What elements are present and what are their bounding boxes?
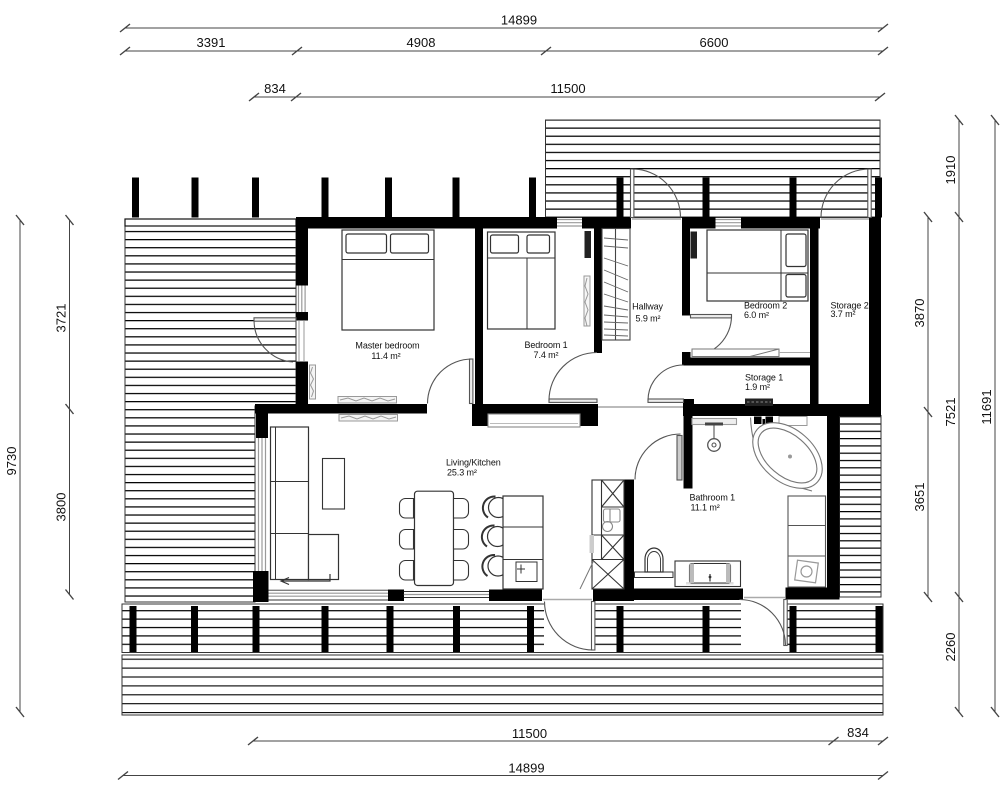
svg-text:3651: 3651 <box>912 483 927 512</box>
svg-text:11500: 11500 <box>512 726 547 741</box>
svg-text:Bedroom 2: Bedroom 2 <box>744 301 787 311</box>
svg-text:Living/Kitchen: Living/Kitchen <box>446 458 501 468</box>
svg-text:6.0 m²: 6.0 m² <box>744 310 769 320</box>
svg-text:11.4 m²: 11.4 m² <box>371 351 400 361</box>
svg-text:Bedroom 1: Bedroom 1 <box>524 340 567 350</box>
svg-text:11500: 11500 <box>550 81 585 96</box>
svg-text:5.9 m²: 5.9 m² <box>636 314 661 324</box>
svg-text:Master bedroom: Master bedroom <box>355 341 419 351</box>
svg-text:3391: 3391 <box>197 35 226 50</box>
svg-text:1.9 m²: 1.9 m² <box>745 382 770 392</box>
svg-text:6600: 6600 <box>700 35 729 50</box>
svg-text:Storage 1: Storage 1 <box>745 373 783 383</box>
svg-text:3.7 m²: 3.7 m² <box>831 309 856 319</box>
svg-text:834: 834 <box>264 81 286 96</box>
svg-text:14899: 14899 <box>508 761 544 776</box>
svg-text:9730: 9730 <box>4 447 19 476</box>
svg-text:7521: 7521 <box>943 398 958 427</box>
svg-text:Bathroom 1: Bathroom 1 <box>690 493 736 503</box>
svg-text:11.1 m²: 11.1 m² <box>691 503 720 513</box>
svg-text:11691: 11691 <box>979 389 994 424</box>
svg-text:14899: 14899 <box>501 13 537 28</box>
svg-text:1910: 1910 <box>943 156 958 185</box>
svg-text:Hallway: Hallway <box>632 302 663 312</box>
svg-text:3870: 3870 <box>912 299 927 328</box>
svg-text:3721: 3721 <box>54 304 69 333</box>
svg-text:3800: 3800 <box>54 493 69 522</box>
svg-text:25.3 m²: 25.3 m² <box>447 468 477 478</box>
svg-text:2260: 2260 <box>943 633 958 662</box>
svg-text:7.4 m²: 7.4 m² <box>534 350 559 360</box>
svg-text:4908: 4908 <box>407 35 436 50</box>
svg-text:834: 834 <box>847 725 869 740</box>
